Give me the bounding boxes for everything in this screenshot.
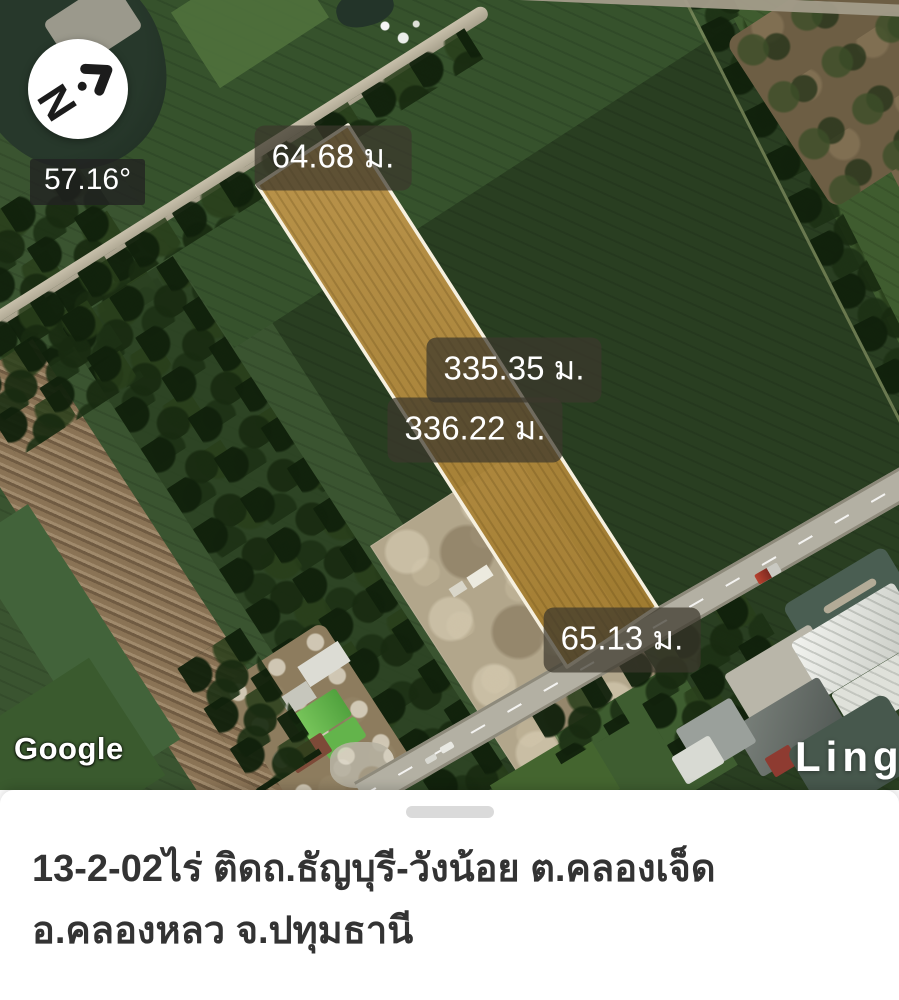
app-screen: 64.68 ม. 335.35 ม. 336.22 ม. 65.13 ม. N … xyxy=(0,0,899,1000)
compass-button[interactable]: N xyxy=(28,39,128,139)
satellite-map[interactable]: 64.68 ม. 335.35 ม. 336.22 ม. 65.13 ม. N … xyxy=(0,0,899,790)
measurement-label-top: 64.68 ม. xyxy=(255,126,412,191)
drag-handle[interactable] xyxy=(406,806,494,818)
bearing-label: 57.16° xyxy=(30,159,145,205)
ling-watermark: Ling xyxy=(795,733,899,781)
measurement-label-right: 335.35 ม. xyxy=(426,338,601,403)
north-arrow-icon: N xyxy=(28,39,128,139)
listing-title-line2: อ.คลองหลว จ.ปทุมธานี xyxy=(32,912,867,950)
bottom-sheet: 13-2-02ไร่ ติดถ.ธัญบุรี-วังน้อย ต.คลองเจ… xyxy=(0,790,899,1000)
measurement-label-left: 336.22 ม. xyxy=(387,398,562,463)
listing-title-line1: 13-2-02ไร่ ติดถ.ธัญบุรี-วังน้อย ต.คลองเจ… xyxy=(32,850,867,888)
listing-title: 13-2-02ไร่ ติดถ.ธัญบุรี-วังน้อย ต.คลองเจ… xyxy=(32,850,867,950)
measurement-label-bottom: 65.13 ม. xyxy=(544,608,701,673)
svg-text:N: N xyxy=(28,76,86,129)
google-watermark: Google xyxy=(14,731,124,767)
